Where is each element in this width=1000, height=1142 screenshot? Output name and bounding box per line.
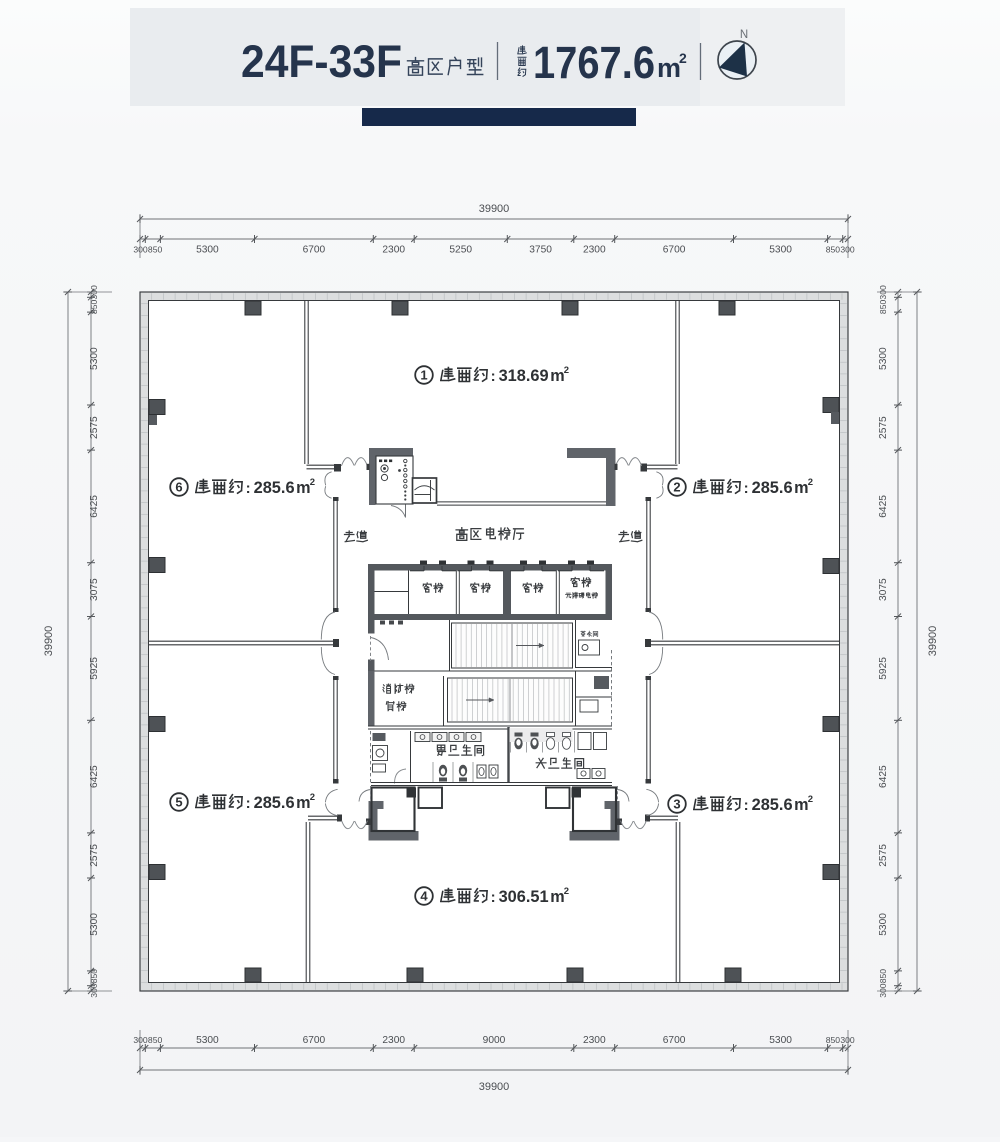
svg-text:m: m bbox=[657, 53, 681, 83]
svg-text:5925: 5925 bbox=[878, 657, 889, 680]
svg-text:N: N bbox=[740, 29, 748, 41]
svg-text:2: 2 bbox=[808, 794, 813, 805]
svg-text:850: 850 bbox=[89, 969, 99, 984]
svg-text:2: 2 bbox=[808, 477, 813, 488]
svg-text:5300: 5300 bbox=[89, 913, 100, 936]
svg-text:6: 6 bbox=[175, 480, 182, 495]
svg-text::: : bbox=[246, 795, 251, 812]
svg-text:5300: 5300 bbox=[878, 347, 889, 370]
svg-text:6700: 6700 bbox=[663, 245, 686, 256]
svg-text:2: 2 bbox=[679, 50, 687, 66]
svg-text:5300: 5300 bbox=[196, 245, 219, 256]
svg-text:m: m bbox=[550, 888, 564, 906]
svg-text:5300: 5300 bbox=[196, 1035, 219, 1046]
svg-text:2575: 2575 bbox=[878, 416, 889, 439]
svg-text:2: 2 bbox=[673, 480, 680, 495]
svg-text:2575: 2575 bbox=[878, 844, 889, 867]
svg-text:300: 300 bbox=[89, 983, 99, 998]
svg-text::: : bbox=[491, 889, 496, 906]
svg-text:m: m bbox=[794, 479, 808, 497]
svg-text:3: 3 bbox=[673, 797, 680, 812]
svg-text:2: 2 bbox=[564, 365, 569, 376]
svg-text::: : bbox=[744, 797, 749, 814]
svg-text:850: 850 bbox=[826, 245, 841, 255]
svg-text:5300: 5300 bbox=[769, 1035, 792, 1046]
svg-text:m: m bbox=[794, 796, 808, 814]
svg-text:2300: 2300 bbox=[583, 1035, 606, 1046]
svg-text:6425: 6425 bbox=[878, 495, 889, 518]
svg-text:5250: 5250 bbox=[449, 245, 472, 256]
svg-text:2300: 2300 bbox=[583, 245, 606, 256]
svg-text:6425: 6425 bbox=[89, 765, 100, 788]
svg-text:6425: 6425 bbox=[878, 765, 889, 788]
svg-text:306.51: 306.51 bbox=[499, 888, 549, 906]
svg-text:5925: 5925 bbox=[89, 657, 100, 680]
svg-text:m: m bbox=[550, 367, 564, 385]
svg-text:6700: 6700 bbox=[303, 1035, 326, 1046]
svg-text:2575: 2575 bbox=[89, 844, 100, 867]
svg-text:24F-33F: 24F-33F bbox=[241, 36, 402, 87]
svg-text:3075: 3075 bbox=[878, 578, 889, 601]
svg-text:2575: 2575 bbox=[89, 416, 100, 439]
svg-text:4: 4 bbox=[420, 889, 428, 904]
svg-text::: : bbox=[491, 368, 496, 385]
svg-text:2: 2 bbox=[310, 477, 315, 488]
svg-text:5300: 5300 bbox=[769, 245, 792, 256]
svg-text:285.6: 285.6 bbox=[752, 796, 793, 814]
svg-text:850: 850 bbox=[878, 969, 888, 984]
svg-text:285.6: 285.6 bbox=[752, 479, 793, 497]
svg-text:5: 5 bbox=[175, 795, 182, 810]
svg-text:850: 850 bbox=[148, 245, 163, 255]
svg-text:39900: 39900 bbox=[479, 1081, 510, 1093]
svg-text::: : bbox=[744, 480, 749, 497]
svg-text:39900: 39900 bbox=[479, 203, 510, 215]
svg-text:2: 2 bbox=[564, 886, 569, 897]
svg-text:6425: 6425 bbox=[89, 495, 100, 518]
svg-text:1: 1 bbox=[420, 368, 427, 383]
svg-text:39900: 39900 bbox=[927, 626, 939, 657]
svg-text:2: 2 bbox=[310, 792, 315, 803]
svg-text:850: 850 bbox=[148, 1035, 163, 1045]
svg-text:850: 850 bbox=[878, 300, 888, 315]
svg-text:3750: 3750 bbox=[529, 245, 552, 256]
svg-text::: : bbox=[246, 480, 251, 497]
svg-text:6700: 6700 bbox=[663, 1035, 686, 1046]
svg-text:5300: 5300 bbox=[89, 347, 100, 370]
svg-text:1767.6: 1767.6 bbox=[533, 37, 655, 88]
svg-text:318.69: 318.69 bbox=[499, 367, 549, 385]
svg-text:m: m bbox=[296, 479, 310, 497]
svg-text:300: 300 bbox=[878, 983, 888, 998]
svg-text:300: 300 bbox=[133, 1035, 148, 1045]
svg-text:2300: 2300 bbox=[382, 1035, 405, 1046]
svg-text:300: 300 bbox=[133, 245, 148, 255]
svg-text:m: m bbox=[296, 794, 310, 812]
svg-text:850: 850 bbox=[89, 300, 99, 315]
svg-text:39900: 39900 bbox=[43, 626, 55, 657]
svg-text:2300: 2300 bbox=[382, 245, 405, 256]
svg-text:6700: 6700 bbox=[303, 245, 326, 256]
svg-text:9000: 9000 bbox=[483, 1035, 506, 1046]
svg-text:5300: 5300 bbox=[878, 913, 889, 936]
svg-text:3075: 3075 bbox=[89, 578, 100, 601]
svg-text:285.6: 285.6 bbox=[254, 794, 295, 812]
svg-text:285.6: 285.6 bbox=[254, 479, 295, 497]
svg-text:850: 850 bbox=[826, 1035, 841, 1045]
